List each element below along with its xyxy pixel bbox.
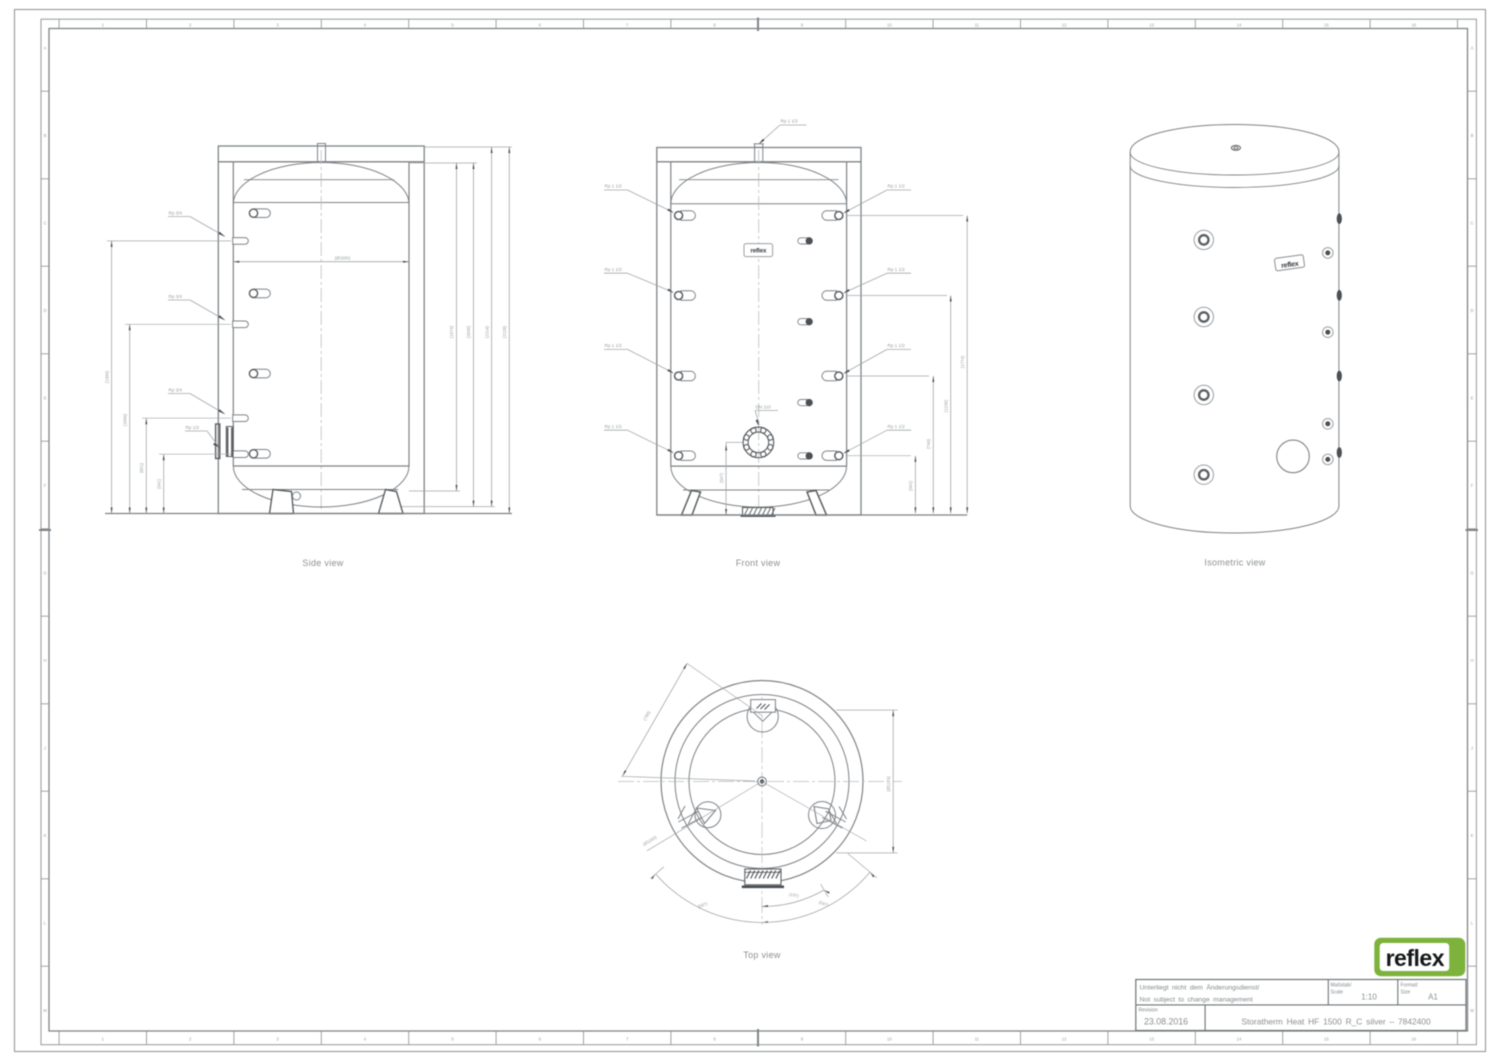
svg-text:13: 13: [1149, 22, 1154, 27]
svg-text:13: 13: [1149, 1036, 1154, 1041]
svg-text:A: A: [44, 45, 47, 50]
svg-text:H: H: [43, 658, 46, 663]
svg-text:Rp 1 1/2: Rp 1 1/2: [605, 343, 623, 348]
svg-text:10: 10: [887, 1036, 892, 1041]
svg-text:H: H: [1470, 658, 1473, 663]
svg-text:F: F: [1471, 483, 1474, 488]
svg-text:15: 15: [1324, 22, 1329, 27]
svg-text:Rp 1 1/2: Rp 1 1/2: [605, 267, 623, 272]
svg-text:14: 14: [1237, 22, 1242, 27]
svg-text:Maßstab/: Maßstab/: [1331, 983, 1352, 989]
svg-text:E: E: [1471, 395, 1474, 400]
svg-text:J: J: [44, 745, 46, 750]
svg-text:(746): (746): [926, 438, 931, 449]
svg-text:Rp 1 1/2: Rp 1 1/2: [605, 184, 623, 189]
svg-text:Format/: Format/: [1401, 983, 1419, 989]
svg-text:Revision: Revision: [1139, 1008, 1158, 1014]
svg-text:Side view: Side view: [302, 558, 343, 568]
svg-text:K: K: [44, 833, 47, 838]
svg-text:E: E: [44, 395, 47, 400]
svg-text:10: 10: [887, 22, 892, 27]
svg-text:Rp 3/4: Rp 3/4: [169, 294, 183, 299]
svg-text:(2128): (2128): [502, 325, 507, 338]
svg-text:Isometric view: Isometric view: [1204, 558, 1265, 568]
svg-text:Top view: Top view: [743, 950, 781, 960]
svg-text:(2114): (2114): [484, 325, 489, 338]
svg-text:1:10: 1:10: [1361, 993, 1377, 1002]
svg-text:(1774): (1774): [960, 355, 965, 368]
svg-text:B: B: [44, 133, 47, 138]
svg-text:(651): (651): [139, 462, 144, 473]
svg-text:Rp 1 1/2: Rp 1 1/2: [888, 343, 906, 348]
svg-text:Scale: Scale: [1331, 990, 1344, 996]
svg-text:C: C: [1470, 220, 1473, 225]
svg-text:11: 11: [975, 22, 980, 27]
svg-text:Front view: Front view: [736, 558, 781, 568]
svg-text:C: C: [43, 220, 46, 225]
svg-text:B: B: [1471, 133, 1474, 138]
svg-text:11: 11: [975, 1036, 980, 1041]
svg-text:A: A: [1471, 45, 1474, 50]
svg-text:D: D: [43, 308, 46, 313]
svg-text:(2049): (2049): [466, 325, 471, 338]
svg-text:Storatherm Heat HF 1500 R_C si: Storatherm Heat HF 1500 R_C silver – 784…: [1241, 1017, 1431, 1027]
svg-text:(1974): (1974): [449, 325, 454, 338]
svg-text:D: D: [1470, 308, 1473, 313]
svg-text:Rp 1 1/2: Rp 1 1/2: [888, 424, 906, 429]
svg-text:F: F: [44, 483, 47, 488]
svg-text:J: J: [1471, 745, 1473, 750]
svg-text:M: M: [1470, 1008, 1474, 1013]
svg-text:(341): (341): [156, 478, 161, 489]
svg-text:(1096): (1096): [122, 413, 127, 426]
svg-text:A1: A1: [1428, 993, 1438, 1002]
svg-text:(1239): (1239): [943, 399, 948, 412]
svg-text:Rp 3/4: Rp 3/4: [169, 211, 183, 216]
svg-text:Rp 1 1/2: Rp 1 1/2: [888, 184, 906, 189]
svg-text:Rp 1 1/2: Rp 1 1/2: [888, 267, 906, 272]
svg-text:Rp 1 1/2: Rp 1 1/2: [781, 119, 799, 124]
svg-text:12: 12: [1062, 1036, 1067, 1041]
svg-text:Size: Size: [1401, 990, 1411, 996]
svg-text:Unterliegt nicht dem Änderungs: Unterliegt nicht dem Änderungsdienst/: [1140, 984, 1260, 992]
svg-text:K: K: [1471, 833, 1474, 838]
svg-text:12: 12: [1062, 22, 1067, 27]
svg-text:M: M: [43, 1008, 47, 1013]
svg-text:Rp 1/2: Rp 1/2: [186, 425, 200, 430]
svg-text:Rp 3/4: Rp 3/4: [169, 388, 183, 393]
svg-text:16: 16: [1411, 1036, 1416, 1041]
svg-text:23.08.2016: 23.08.2016: [1144, 1017, 1188, 1027]
svg-text:Not subject to change manageme: Not subject to change management: [1140, 997, 1253, 1004]
svg-text:DN 110: DN 110: [756, 405, 772, 410]
svg-text:14: 14: [1237, 1036, 1242, 1041]
svg-text:15: 15: [1324, 1036, 1329, 1041]
svg-text:(1396): (1396): [104, 370, 109, 383]
svg-text:reflex: reflex: [750, 248, 766, 255]
svg-text:reflex: reflex: [1386, 945, 1445, 971]
svg-text:16: 16: [1411, 22, 1416, 27]
svg-text:(Ø1174): (Ø1174): [886, 776, 891, 792]
svg-text:Rp 1 1/2: Rp 1 1/2: [605, 424, 623, 429]
svg-text:(Ø1500): (Ø1500): [335, 256, 351, 261]
svg-text:(347): (347): [719, 472, 724, 483]
svg-text:(341): (341): [908, 480, 913, 491]
